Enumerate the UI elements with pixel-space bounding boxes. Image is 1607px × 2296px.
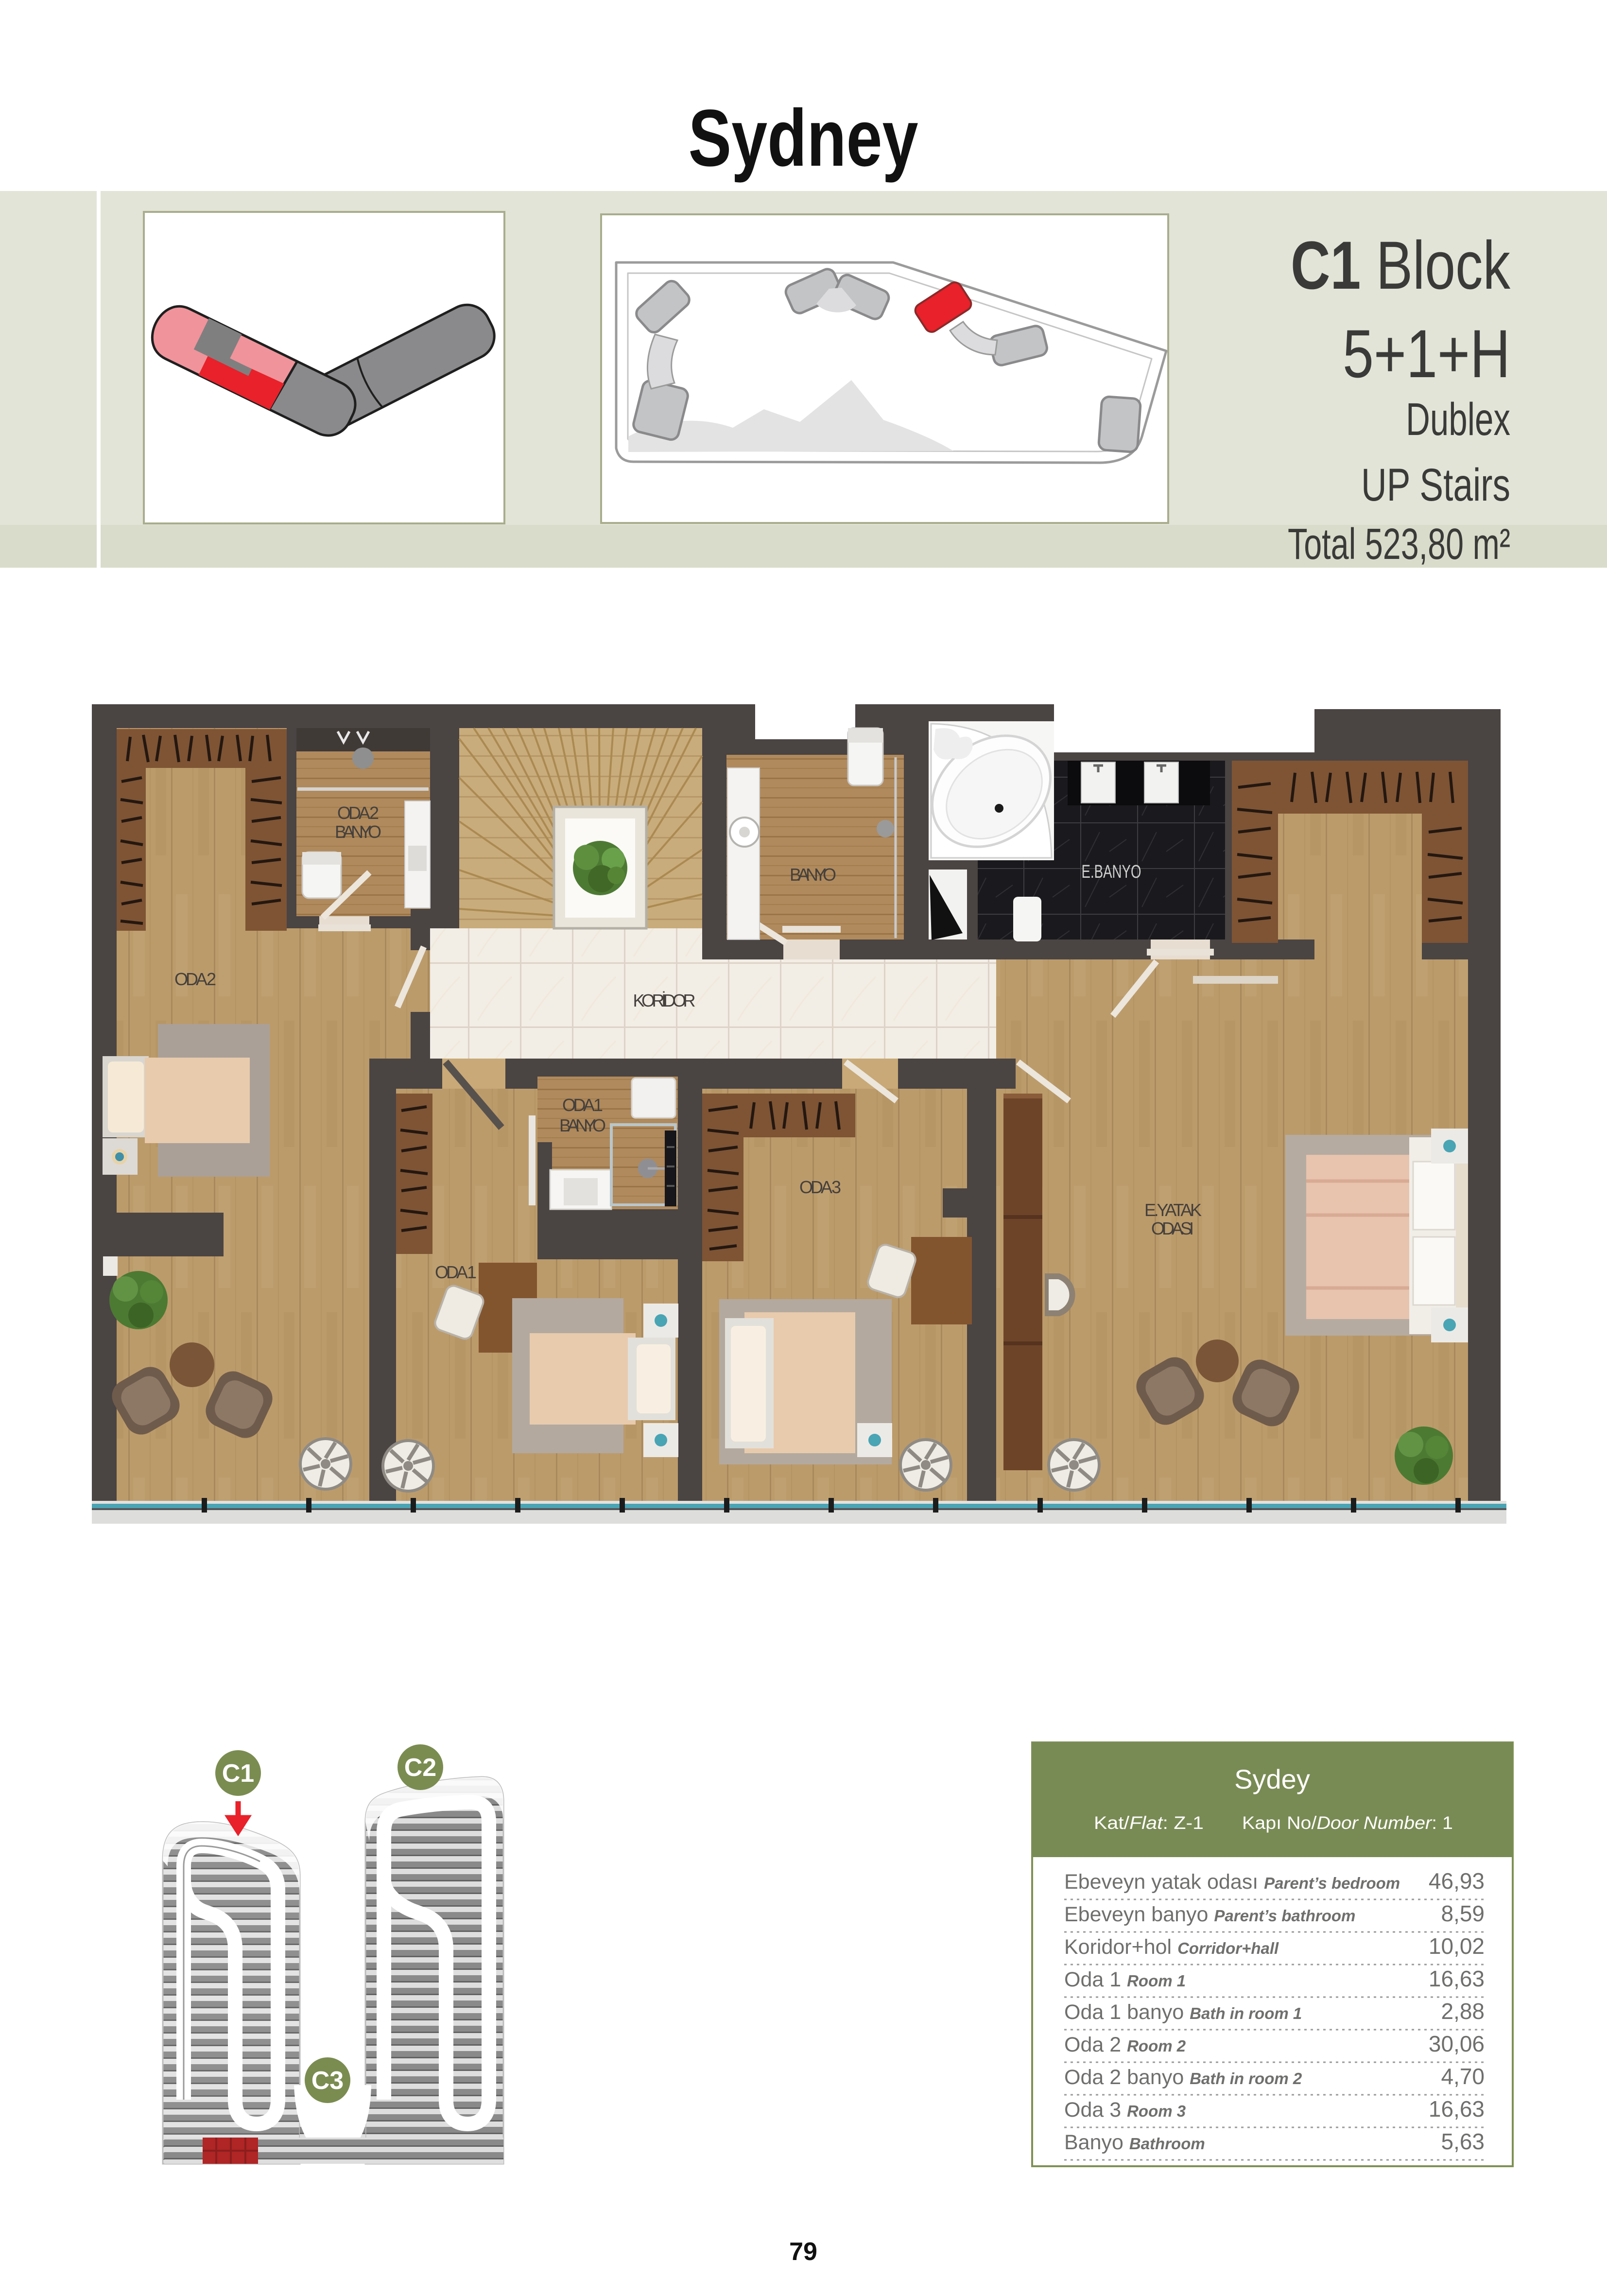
svg-text:UP Stairs: UP Stairs <box>1361 459 1510 511</box>
svg-text:BANYO: BANYO <box>790 865 836 885</box>
svg-text:C3: C3 <box>311 2067 344 2095</box>
svg-text:Koridor+hol Corridor+hall: Koridor+hol Corridor+hall <box>1064 1935 1279 1959</box>
svg-text:ODA 3: ODA 3 <box>799 1177 841 1197</box>
svg-text:16,63: 16,63 <box>1429 2096 1485 2122</box>
svg-text:ODA 2: ODA 2 <box>337 803 379 823</box>
svg-text:BANYO: BANYO <box>335 822 381 842</box>
svg-text:Sydney: Sydney <box>689 93 918 183</box>
svg-text:C1: C1 <box>222 1759 254 1788</box>
svg-text:Ebeveyn yatak odası Parent’s b: Ebeveyn yatak odası Parent’s bedroom <box>1064 1870 1400 1894</box>
svg-text:E.BANYO: E.BANYO <box>1082 862 1141 882</box>
svg-text:E.YATAK: E.YATAK <box>1144 1200 1202 1220</box>
svg-text:Oda 2 Room 2: Oda 2 Room 2 <box>1064 2033 1186 2056</box>
svg-text:79: 79 <box>789 2238 817 2266</box>
svg-text:Oda 1 banyo Bath in room 1: Oda 1 banyo Bath in room 1 <box>1064 2000 1302 2024</box>
svg-text:ODA 1: ODA 1 <box>562 1095 603 1115</box>
svg-text:ODASI: ODASI <box>1151 1218 1194 1238</box>
svg-text:Oda 3 Room 3: Oda 3 Room 3 <box>1064 2098 1186 2122</box>
svg-text:Oda 1 Room 1: Oda 1 Room 1 <box>1064 1968 1186 1991</box>
svg-text:BANYO: BANYO <box>559 1115 606 1135</box>
svg-text:Ebeveyn banyo Parent’s bathroo: Ebeveyn banyo Parent’s bathroom <box>1064 1903 1355 1926</box>
svg-text:C2: C2 <box>404 1754 436 1782</box>
svg-text:16,63: 16,63 <box>1429 1966 1485 1991</box>
svg-text:Kat/Flat: Z-1: Kat/Flat: Z-1 <box>1094 1813 1204 1833</box>
svg-text:KORİDOR: KORİDOR <box>633 991 696 1010</box>
svg-text:ODA 1: ODA 1 <box>435 1262 477 1282</box>
svg-text:Banyo Bathroom: Banyo Bathroom <box>1064 2131 1205 2154</box>
svg-text:30,06: 30,06 <box>1429 2031 1485 2056</box>
svg-text:2,88: 2,88 <box>1441 1999 1485 2024</box>
svg-text:Dublex: Dublex <box>1406 394 1510 445</box>
svg-text:Sydey: Sydey <box>1234 1764 1310 1794</box>
svg-text:ODA 2: ODA 2 <box>174 969 216 989</box>
svg-text:8,59: 8,59 <box>1441 1901 1485 1926</box>
svg-text:10,02: 10,02 <box>1429 1933 1485 1959</box>
svg-text:Oda 2 banyo Bath in room 2: Oda 2 banyo Bath in room 2 <box>1064 2066 1302 2089</box>
svg-text:5,63: 5,63 <box>1441 2129 1485 2154</box>
svg-text:C1 Block: C1 Block <box>1291 227 1511 303</box>
svg-text:Kapı No/Door Number: 1: Kapı No/Door Number: 1 <box>1242 1813 1453 1833</box>
svg-text:4,70: 4,70 <box>1441 2064 1485 2089</box>
svg-text:46,93: 46,93 <box>1429 1868 1485 1894</box>
svg-text:5+1+H: 5+1+H <box>1343 315 1510 392</box>
svg-text:Total 523,80 m²: Total 523,80 m² <box>1288 520 1510 569</box>
